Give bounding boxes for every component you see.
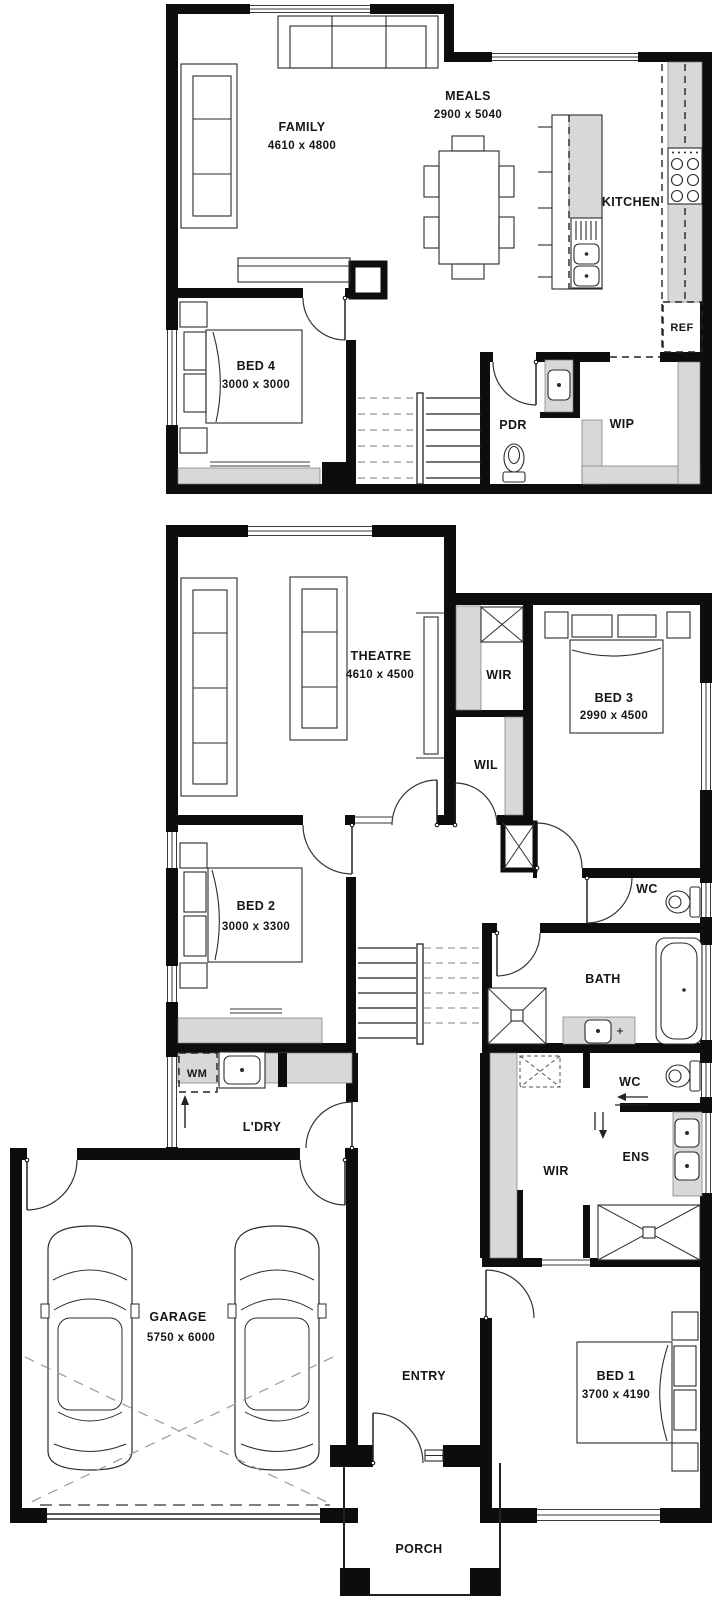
slider-arrow-down-icon	[595, 1112, 607, 1139]
vanity-icon	[673, 1112, 702, 1196]
room-label-porch: PORCH	[395, 1542, 442, 1556]
room-label-family: FAMILY	[278, 120, 325, 134]
island-bench	[538, 115, 602, 289]
bed-icon	[180, 302, 302, 453]
bed3-door-arc	[537, 823, 582, 868]
hinge-dots	[343, 296, 538, 364]
arrow-up-icon	[181, 1095, 189, 1128]
room-label-bath: BATH	[585, 972, 620, 986]
room-dim-bed2: 3000 x 3300	[222, 921, 290, 933]
hall-door-arc	[486, 1270, 534, 1318]
basin-icon	[545, 360, 573, 412]
garage-side-door-arc	[27, 1160, 77, 1210]
room-label-wir-hall: WIR	[486, 668, 512, 682]
toilet-icon	[666, 887, 700, 917]
room-label-bed1: BED 1	[597, 1369, 636, 1383]
room-label-pdr: PDR	[499, 418, 527, 432]
bath-door-arc	[497, 933, 540, 976]
pdr-door-arc	[493, 362, 536, 405]
room-label-bed2: BED 2	[237, 899, 276, 913]
room-dim-meals: 2900 x 5040	[434, 109, 502, 121]
bed-icon	[180, 843, 302, 988]
theatre-door-arc	[392, 780, 437, 825]
sofa-icon	[181, 578, 237, 796]
bathtub-icon	[656, 938, 702, 1044]
wc-door-arc	[587, 878, 632, 923]
room-label-wc: WC	[636, 882, 658, 896]
room-label-wil: WIL	[474, 758, 498, 772]
room-label-theatre: THEATRE	[351, 649, 412, 663]
room-label-wip: WIP	[610, 417, 635, 431]
room-label-laundry: L'DRY	[243, 1120, 282, 1134]
stair-handrail	[417, 393, 423, 484]
robe-shelf	[178, 468, 320, 484]
room-dim-bed3: 2990 x 4500	[580, 710, 648, 722]
room-label-garage: GARAGE	[149, 1310, 206, 1324]
cooktop-icon	[668, 148, 702, 204]
wil-shelf	[505, 717, 523, 815]
room-label-meals: MEALS	[445, 89, 491, 103]
wir-master-shelves	[490, 1053, 560, 1258]
robe-shelf	[178, 1018, 322, 1043]
kitchen-counter	[662, 62, 702, 350]
labels: FAMILY 4610 x 4800 MEALS 2900 x 5040 KIT…	[222, 89, 694, 432]
room-dim-bed1: 3700 x 4190	[582, 1389, 650, 1401]
room-dim-bed4: 3000 x 3000	[222, 379, 290, 391]
porch-outline	[340, 1463, 500, 1596]
label-wm: WM	[187, 1068, 207, 1080]
vanity-icon	[563, 1017, 635, 1044]
room-label-bed3: BED 3	[595, 691, 634, 705]
front-door-arc	[373, 1413, 423, 1463]
room-label-bed4: BED 4	[237, 359, 276, 373]
tv-cabinet-icon	[238, 258, 350, 282]
room-label-kitchen: KITCHEN	[602, 195, 660, 209]
garage-contents	[25, 1226, 333, 1519]
car-icon	[228, 1226, 326, 1470]
labels: THEATRE 4610 x 4500 WIR BED 3 2990 x 450…	[147, 649, 658, 1556]
room-label-ens: ENS	[623, 1150, 650, 1164]
sofa-icon	[290, 577, 347, 740]
shower-icon	[488, 988, 546, 1044]
room-label-entry: ENTRY	[402, 1369, 446, 1383]
pantry-shelves	[582, 362, 700, 484]
bed2-furniture	[178, 843, 322, 1043]
car-icon	[41, 1226, 139, 1470]
sofa-icon	[181, 64, 237, 228]
stairs-icon	[358, 944, 482, 1044]
label-ref: REF	[670, 322, 693, 334]
stair-handrail	[417, 944, 423, 1044]
wil-door-arc	[455, 783, 497, 825]
bed4-door-arc	[303, 298, 345, 340]
toilet-icon	[666, 1061, 700, 1091]
sofa-icon	[278, 16, 438, 68]
room-label-wir-master: WIR	[543, 1164, 569, 1178]
laundry-fixtures	[178, 1052, 352, 1128]
garage-internal-door-arc	[300, 1160, 345, 1205]
laundry-trough-icon	[219, 1052, 265, 1088]
laundry-door-arc	[306, 1102, 352, 1148]
upper-floor-plan: FAMILY 4610 x 4800 MEALS 2900 x 5040 KIT…	[166, 4, 712, 494]
bed4-furniture	[178, 302, 320, 484]
linen-closet	[503, 823, 535, 870]
floor-plan: FAMILY 4610 x 4800 MEALS 2900 x 5040 KIT…	[0, 0, 721, 1600]
nib-column	[352, 264, 384, 296]
ground-floor-plan: THEATRE 4610 x 4500 WIR BED 3 2990 x 450…	[10, 525, 712, 1596]
room-dim-garage: 5750 x 6000	[147, 1332, 215, 1344]
room-dim-family: 4610 x 4800	[268, 140, 336, 152]
toilet-icon	[503, 444, 525, 482]
room-dim-theatre: 4610 x 4500	[346, 669, 414, 681]
dining-table-icon	[424, 136, 514, 279]
shower-icon	[598, 1205, 700, 1260]
room-label-wc-ens: WC	[619, 1075, 641, 1089]
bed2-door-arc	[303, 825, 352, 874]
bathroom-fixtures	[488, 887, 702, 1044]
theatre-furniture	[181, 577, 446, 796]
tv-unit-icon	[416, 613, 446, 758]
stairs-icon	[358, 393, 482, 484]
